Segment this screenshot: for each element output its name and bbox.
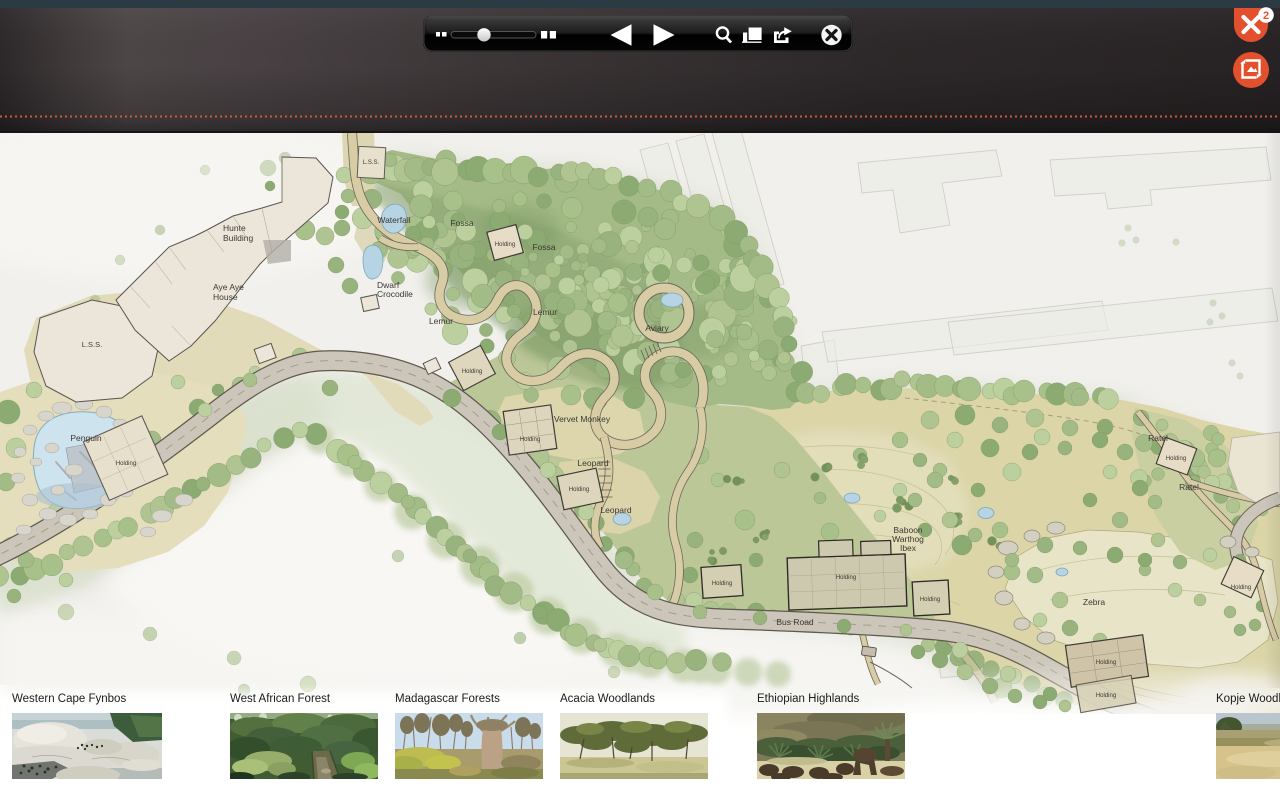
- svg-text:Building: Building: [223, 233, 254, 243]
- svg-text:Crocodile: Crocodile: [377, 289, 413, 299]
- svg-text:Lemur: Lemur: [429, 316, 453, 326]
- svg-text:Fossa: Fossa: [450, 218, 473, 228]
- svg-text:Holding: Holding: [1096, 660, 1116, 666]
- svg-text:Lemur: Lemur: [533, 307, 557, 317]
- svg-text:Bus Road: Bus Road: [776, 617, 814, 627]
- svg-text:Ratel: Ratel: [1148, 433, 1168, 443]
- svg-text:Hunte: Hunte: [223, 223, 246, 233]
- svg-text:Leopard: Leopard: [600, 505, 631, 515]
- svg-text:Holding: Holding: [569, 487, 589, 493]
- svg-text:Aye Aye: Aye Aye: [213, 282, 244, 292]
- svg-text:Aviary: Aviary: [645, 323, 669, 333]
- svg-text:Holding: Holding: [495, 242, 515, 248]
- svg-text:Holding: Holding: [712, 581, 732, 587]
- svg-text:L.S.S.: L.S.S.: [363, 160, 380, 166]
- svg-text:Ratel: Ratel: [1179, 482, 1199, 492]
- svg-text:Holding: Holding: [1231, 585, 1251, 591]
- svg-text:Fossa: Fossa: [532, 242, 555, 252]
- svg-text:Penguin: Penguin: [70, 433, 101, 443]
- svg-text:Leopard: Leopard: [577, 458, 608, 468]
- svg-text:House: House: [213, 292, 238, 302]
- svg-text:Holding: Holding: [1166, 456, 1186, 462]
- svg-text:Holding: Holding: [462, 369, 482, 375]
- svg-text:Zebra: Zebra: [1083, 597, 1105, 607]
- svg-text:2: 2: [1263, 10, 1269, 22]
- svg-text:Vervet Monkey: Vervet Monkey: [554, 414, 611, 424]
- svg-text:Holding: Holding: [836, 575, 856, 581]
- svg-text:Ibex: Ibex: [900, 543, 917, 553]
- svg-text:Holding: Holding: [116, 461, 136, 467]
- svg-text:Holding: Holding: [920, 597, 940, 603]
- svg-text:Waterfall: Waterfall: [377, 215, 410, 225]
- svg-text:Holding: Holding: [520, 437, 540, 443]
- svg-text:Holding: Holding: [1096, 693, 1116, 699]
- svg-text:L.S.S.: L.S.S.: [82, 340, 102, 349]
